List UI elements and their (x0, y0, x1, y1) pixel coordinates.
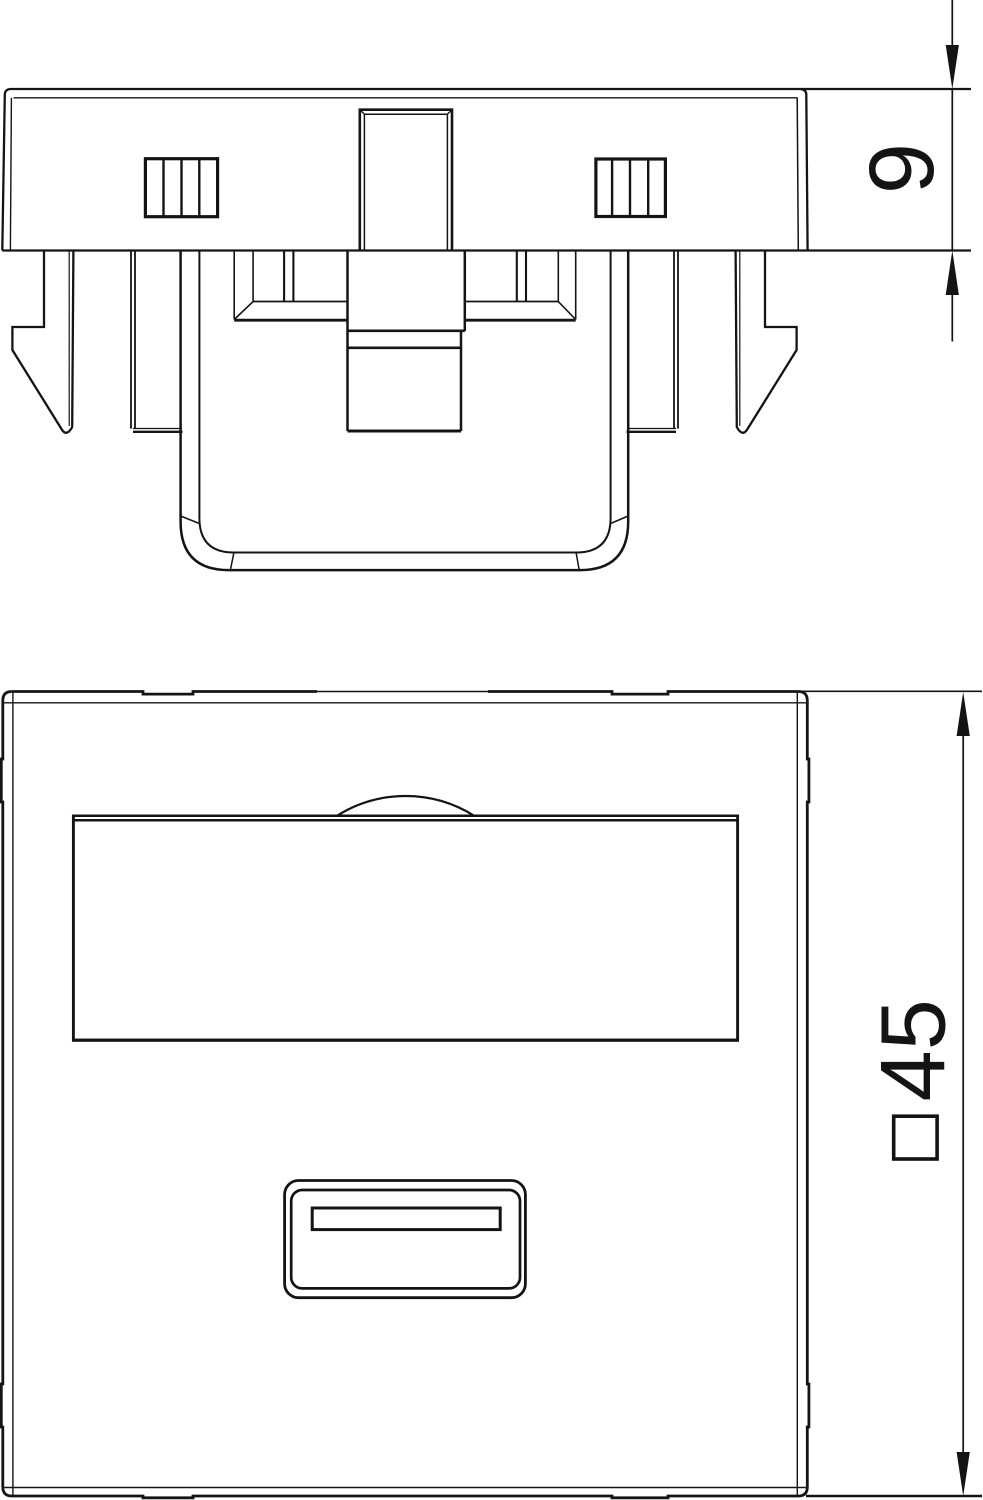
svg-text:9: 9 (851, 143, 953, 194)
svg-text:45: 45 (862, 999, 964, 1101)
